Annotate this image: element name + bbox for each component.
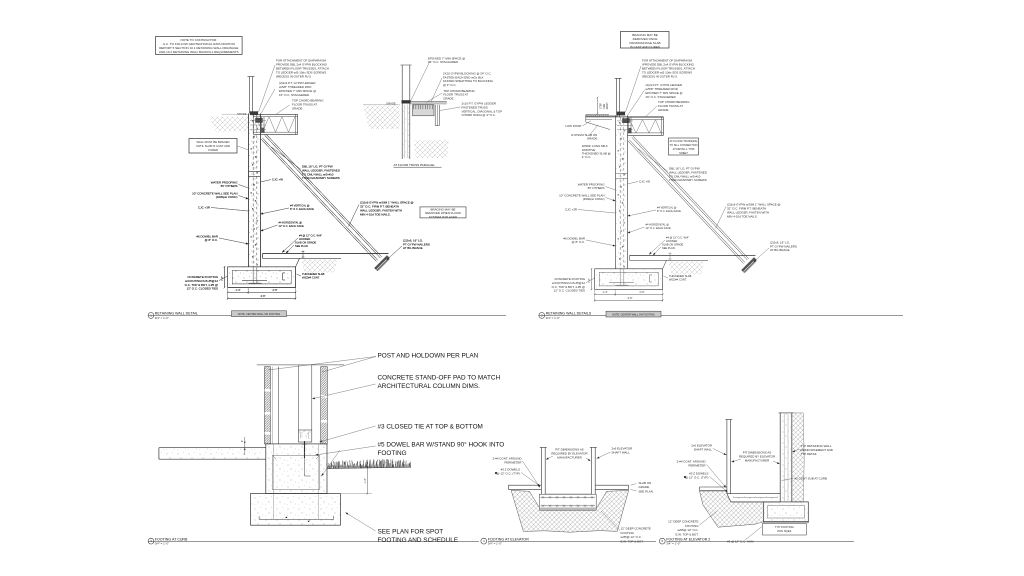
- svg-text:(RECESS IN OUTER PLY): (RECESS IN OUTER PLY): [642, 74, 677, 78]
- svg-text:3/4" = 1'-0": 3/4" = 1'-0": [666, 542, 680, 546]
- svg-text:PAN SQE2: PAN SQE2: [778, 529, 792, 533]
- svg-text:GRADE: GRADE: [587, 136, 597, 140]
- svg-text:NOTE: CENTER WALL ON FOOTING: NOTE: CENTER WALL ON FOOTING: [612, 313, 655, 316]
- svg-text:SEE PLAN FOR SPOT: SEE PLAN FOR SPOT: [378, 529, 444, 536]
- svg-text:@ 12" O.C. (TYP): @ 12" O.C. (TYP): [685, 475, 708, 479]
- svg-text:AT DETAIL 1 THIS: AT DETAIL 1 THIS: [673, 147, 695, 151]
- svg-text:CURED: CURED: [208, 148, 218, 152]
- svg-text:ARCHITECTURAL COLUMN DIMS.: ARCHITECTURAL COLUMN DIMS.: [378, 383, 481, 390]
- svg-text:3/4" = 1'-0": 3/4" = 1'-0": [488, 542, 502, 546]
- svg-text:SYSTEM IS PLACED: SYSTEM IS PLACED: [429, 215, 457, 219]
- svg-text:4": 4": [242, 440, 244, 442]
- svg-text:3/4" = 1'-0": 3/4" = 1'-0": [155, 316, 169, 320]
- svg-text:TO SILL CONNECTION: TO SILL CONNECTION: [669, 143, 697, 147]
- svg-text:SHAFT WALL: SHAFT WALL: [612, 450, 631, 454]
- svg-text:CONCRETE STAND-OFF PAD TO MAT: CONCRETE STAND-OFF PAD TO MATCH: [378, 375, 501, 382]
- svg-text:16" O.C. STAGGERED: 16" O.C. STAGGERED: [646, 95, 676, 99]
- svg-text:ARCH: ARCH: [606, 102, 609, 109]
- svg-text:LOW POINT: LOW POINT: [565, 124, 581, 128]
- svg-text:#5 DOWEL BAR W/STAND 90° HOOK: #5 DOWEL BAR W/STAND 90° HOOK INTO: [378, 441, 505, 449]
- svg-text:#2 CONT SUB AT CURB: #2 CONT SUB AT CURB: [795, 476, 828, 480]
- svg-text:4" O.C.: 4" O.C.: [582, 155, 592, 159]
- svg-text:AT FLOOR TRUSS PARALLEL: AT FLOOR TRUSS PARALLEL: [394, 163, 436, 167]
- svg-text:E.W. TOP & BOT.: E.W. TOP & BOT.: [675, 532, 698, 536]
- svg-text:FOOTING: FOOTING: [378, 450, 407, 457]
- svg-text:TYP DETAIL: TYP DETAIL: [801, 452, 818, 456]
- svg-text:PERIMETER: PERIMETER: [688, 463, 705, 467]
- svg-text:PERIMETER: PERIMETER: [504, 460, 521, 464]
- svg-text:GRADE: GRADE: [658, 108, 668, 112]
- svg-text:PER: PER: [604, 103, 606, 108]
- svg-text:16" O.C. STAGGERED: 16" O.C. STAGGERED: [279, 93, 309, 97]
- svg-text:FOOTING AND SCHEDULE: FOOTING AND SCHEDULE: [378, 537, 459, 544]
- svg-text:MANUFACTURER: MANUFACTURER: [745, 458, 769, 462]
- svg-text:(RECESS IN OUTER PLY): (RECESS IN OUTER PLY): [276, 74, 311, 78]
- svg-text:3/4" = 1'-0": 3/4" = 1'-0": [546, 316, 560, 320]
- svg-text:SHAFT WALL: SHAFT WALL: [694, 447, 713, 451]
- svg-text:16" O.C. STAGGARED: 16" O.C. STAGGARED: [428, 60, 458, 64]
- svg-text:CHORD W/10d @ 3" O.C.: CHORD W/10d @ 3" O.C.: [462, 113, 496, 117]
- svg-text:MANUFACTURER: MANUFACTURER: [557, 455, 581, 459]
- svg-text:3/4" = 1'-0": 3/4" = 1'-0": [155, 542, 169, 546]
- svg-text:STEP: STEP: [601, 103, 603, 109]
- svg-text:@ 3" O.C.: @ 3" O.C.: [443, 83, 457, 87]
- svg-text:SHEET: SHEET: [679, 151, 688, 155]
- svg-text:#3 CLOSED TIE AT TOP & BOTTOM: #3 CLOSED TIE AT TOP & BOTTOM: [378, 424, 483, 431]
- svg-text:-1'-0": -1'-0": [364, 478, 367, 484]
- svg-text:IS CAST AND CURED: IS CAST AND CURED: [630, 45, 661, 49]
- svg-text:GRADE: GRADE: [443, 96, 453, 100]
- svg-text:POST AND HOLDOWN PER PLAN: POST AND HOLDOWN PER PLAN: [378, 353, 479, 360]
- svg-text:NOTE: CENTER WALL ON FOOTING: NOTE: CENTER WALL ON FOOTING: [238, 313, 281, 316]
- svg-text:AND 10.2 RETAINING WALL BACKFI: AND 10.2 RETAINING WALL BACKFILL REQUIRE…: [159, 50, 239, 54]
- svg-text:GRADE: GRADE: [292, 106, 302, 110]
- svg-text:@ 12" O.C. (TYP): @ 12" O.C. (TYP): [497, 471, 520, 475]
- svg-text:AT FLOOR TRUSS(ES): AT FLOOR TRUSS(ES): [670, 139, 698, 143]
- svg-text:SEE PLAN: SEE PLAN: [639, 489, 653, 493]
